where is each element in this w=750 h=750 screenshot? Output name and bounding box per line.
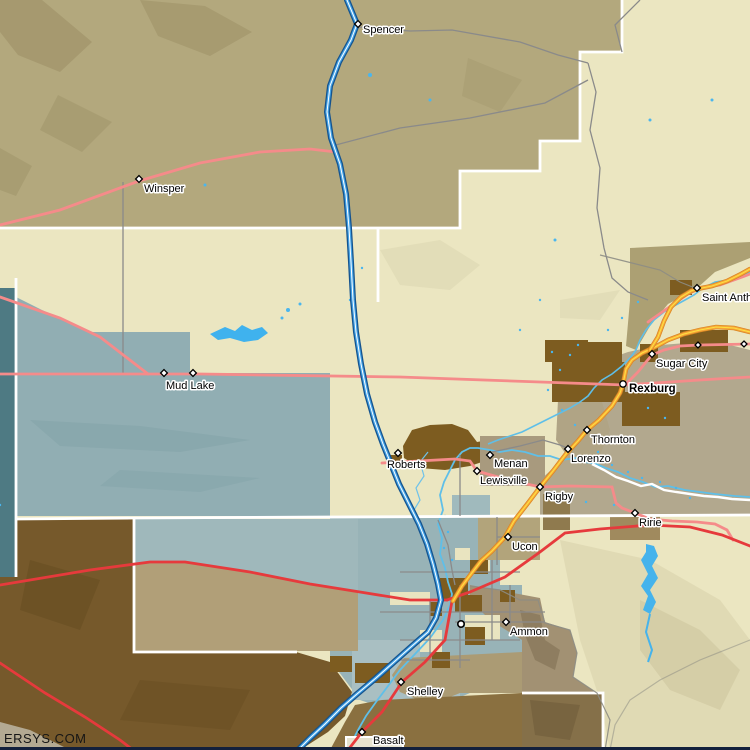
wetland-cell [452,495,490,516]
city-label-thornton: Thornton [591,434,635,446]
city-label-rigby: Rigby [545,491,574,503]
map-canvas[interactable]: SpencerWinsperMud LakeSaint AnthonySugar… [0,0,750,750]
city-label-spencer: Spencer [363,24,404,36]
map-viewport[interactable]: SpencerWinsperMud LakeSaint AnthonySugar… [0,0,750,750]
city-marker-rexburg[interactable] [620,381,626,387]
city-label-menan: Menan [494,458,528,470]
watermark: ERSYS.COM [4,731,87,746]
city-label-lorenzo: Lorenzo [571,453,611,465]
city-label-shelley: Shelley [407,686,444,698]
city-label-basalt: Basalt [373,735,404,747]
city-label-roberts: Roberts [387,459,426,471]
city-label-sugar-city: Sugar City [656,358,708,370]
city-label-mud-lake: Mud Lake [166,380,214,392]
city-label-lewisville: Lewisville [480,475,527,487]
city-label-rexburg: Rexburg [629,383,676,395]
city-label-ammon: Ammon [510,626,548,638]
city-label-ucon: Ucon [512,541,538,553]
city-marker-place[interactable] [458,621,464,627]
terrain-teal-strip [0,288,16,577]
city-label-winsper: Winsper [144,183,185,195]
city-label-ririe: Ririe [639,517,662,529]
city-label-saint-anthony: Saint Anthony [702,292,750,304]
